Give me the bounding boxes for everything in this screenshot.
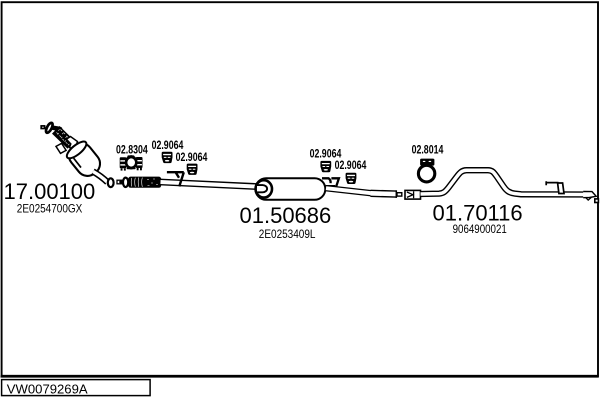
svg-text:02.9064: 02.9064 <box>176 151 208 165</box>
svg-text:17.00100: 17.00100 <box>4 179 96 204</box>
svg-text:01.70116: 01.70116 <box>433 200 523 225</box>
svg-text:02.9064: 02.9064 <box>335 159 367 173</box>
svg-text:2E0253409L: 2E0253409L <box>259 228 316 241</box>
svg-text:01.50686: 01.50686 <box>240 203 332 228</box>
svg-text:2E0254700GX: 2E0254700GX <box>17 203 83 216</box>
svg-text:9064900021: 9064900021 <box>453 223 507 236</box>
svg-text:02.8304: 02.8304 <box>116 143 148 157</box>
svg-text:02.8014: 02.8014 <box>412 143 444 157</box>
svg-text:VW0079269A: VW0079269A <box>7 382 88 397</box>
